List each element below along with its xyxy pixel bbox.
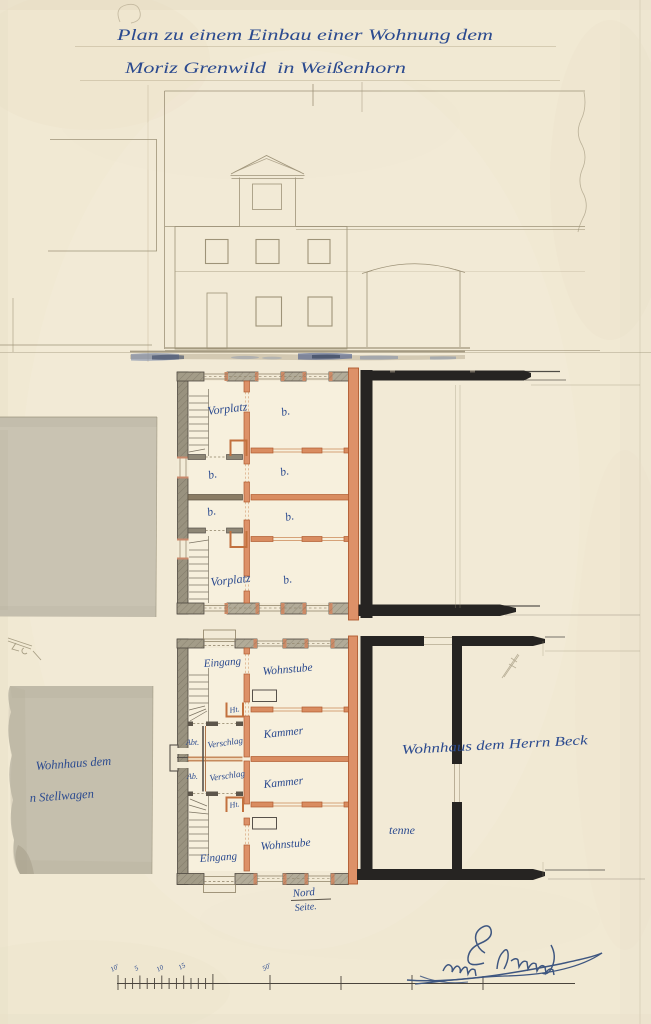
- svg-text:Seite.: Seite.: [294, 901, 317, 914]
- svg-text:Ab.: Ab.: [186, 772, 198, 781]
- svg-text:Nord: Nord: [291, 886, 316, 900]
- svg-text:tenne: tenne: [389, 823, 416, 837]
- svg-text:Ht.: Ht.: [228, 704, 240, 715]
- svg-text:Abt.: Abt.: [185, 738, 199, 747]
- svg-text:Moriz Grenwild in Weißenhorn: Moriz Grenwild in Weißenhorn: [124, 60, 406, 77]
- svg-text:Plan zu einem Einbau einer Woh: Plan zu einem Einbau einer Wohnung dem: [116, 27, 493, 44]
- svg-text:Ht.: Ht.: [228, 799, 240, 810]
